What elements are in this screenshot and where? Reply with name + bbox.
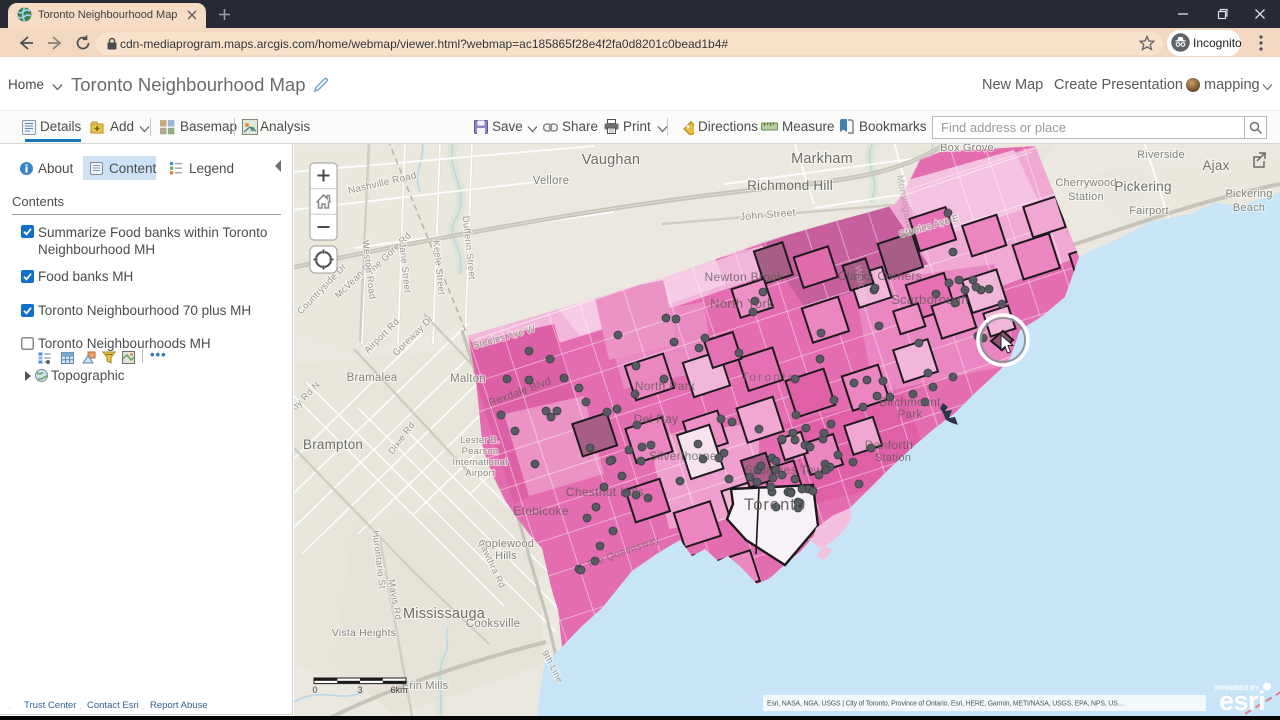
svg-text:Airport: Airport — [465, 468, 495, 479]
svg-text:Lester B.: Lester B. — [460, 435, 500, 446]
svg-text:Brampton: Brampton — [303, 437, 363, 452]
svg-text:St James Town: St James Town — [744, 463, 829, 477]
svg-text:Chestnut Hills: Chestnut Hills — [566, 485, 644, 499]
svg-text:Vista Heights: Vista Heights — [332, 627, 396, 639]
svg-text:esri: esri — [1219, 686, 1265, 716]
svg-text:Vellore: Vellore — [533, 175, 570, 187]
svg-text:Esri, NASA, NGA, USGS | City o: Esri, NASA, NGA, USGS | City of Toronto,… — [767, 701, 1124, 708]
svg-text:Malton: Malton — [450, 373, 486, 385]
svg-text:0: 0 — [312, 685, 317, 695]
svg-text:Station: Station — [1068, 191, 1104, 203]
svg-text:International: International — [453, 457, 508, 468]
svg-text:Newton Brook: Newton Brook — [705, 270, 785, 284]
svg-text:Danforth: Danforth — [865, 438, 913, 452]
svg-text:Park: Park — [898, 409, 923, 421]
svg-text:North Park: North Park — [635, 379, 696, 393]
svg-text:Markham: Markham — [791, 151, 853, 167]
svg-text:Box Grove: Box Grove — [940, 144, 994, 154]
svg-text:Richmond Hill: Richmond Hill — [747, 178, 833, 193]
svg-text:Beach: Beach — [1233, 202, 1265, 214]
svg-text:Station: Station — [875, 452, 911, 464]
svg-text:Pearson: Pearson — [462, 446, 499, 457]
svg-text:Scarborough: Scarborough — [891, 292, 969, 307]
svg-text:Vaughan: Vaughan — [582, 152, 640, 168]
svg-text:Hills: Hills — [495, 550, 517, 562]
svg-text:Cooksville: Cooksville — [466, 618, 520, 630]
svg-text:Toronto: Toronto — [744, 496, 806, 514]
svg-text:Riverside: Riverside — [1137, 149, 1185, 161]
svg-text:6km: 6km — [390, 685, 407, 695]
svg-text:3: 3 — [357, 685, 362, 695]
svg-text:Ajax: Ajax — [1202, 158, 1229, 173]
svg-text:Bramalea: Bramalea — [347, 372, 398, 384]
svg-text:North York: North York — [710, 296, 774, 311]
svg-text:Del Ray: Del Ray — [634, 412, 679, 426]
svg-text:Erin Mills: Erin Mills — [402, 680, 449, 692]
svg-text:Etobicoke: Etobicoke — [513, 504, 568, 518]
svg-text:Birchmount: Birchmount — [879, 397, 941, 409]
svg-text:Pickering: Pickering — [1225, 188, 1272, 200]
svg-text:Toronto: Toronto — [741, 372, 797, 384]
svg-text:Clarks Corners: Clarks Corners — [838, 269, 922, 283]
svg-text:Silverthorne: Silverthorne — [649, 449, 717, 463]
svg-text:Cherrywood: Cherrywood — [1055, 177, 1116, 189]
svg-text:Fairport: Fairport — [1129, 205, 1169, 217]
svg-text:Pickering: Pickering — [1114, 179, 1171, 194]
